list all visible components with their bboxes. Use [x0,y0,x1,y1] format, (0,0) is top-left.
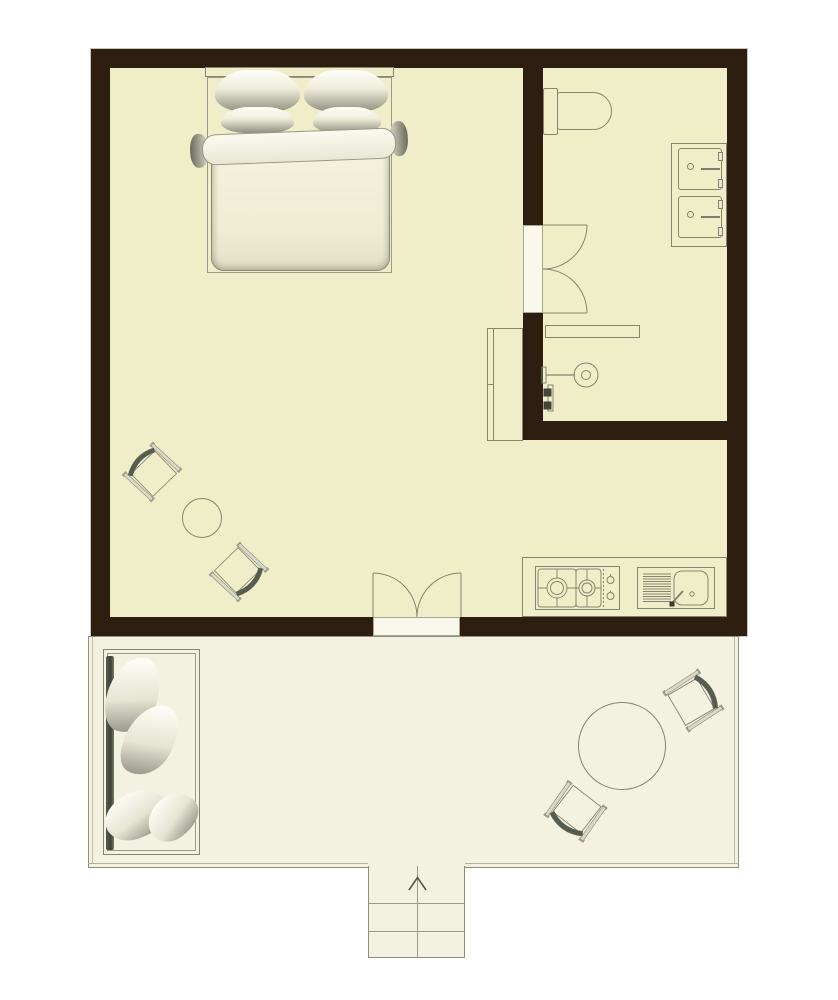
bathroom-bottom-wall [523,421,727,440]
terrace-table [578,702,666,790]
kitchen-sink-icon [637,567,715,609]
pillow [304,70,388,112]
daybed [103,649,200,855]
bathroom-door-frame [523,225,543,313]
pillow [215,70,300,112]
entrance-sill [373,617,460,636]
stove-icon [535,566,620,610]
duvet-fold-band [201,127,396,165]
shower-icon [538,358,602,416]
floor-plan [0,0,838,1000]
entrance-door-icon [372,571,462,618]
faucet-tap [718,227,723,236]
faucet-spout-1 [701,168,720,170]
terrace-edge-left [88,863,368,868]
duvet-fold [189,120,409,172]
entry-arrow-icon [369,866,466,958]
bathroom-door-icon [543,224,589,314]
faucet-tap [718,179,723,188]
interior-wall-upper [523,68,543,225]
double-bed [190,66,408,278]
basin-drain-2 [687,211,694,218]
wardrobe [487,328,523,441]
toilet-tank [543,88,558,135]
faucet-tap [718,152,723,161]
wardrobe-divider [488,384,494,385]
entrance-stairs [368,866,465,958]
basin-drain-1 [687,163,694,170]
bathroom-shelf [545,325,640,338]
terrace-edge-right [465,863,739,868]
faucet-tap [718,200,723,209]
toilet-bowl [557,92,612,130]
side-table [182,498,222,538]
faucet-spout-2 [701,216,720,218]
